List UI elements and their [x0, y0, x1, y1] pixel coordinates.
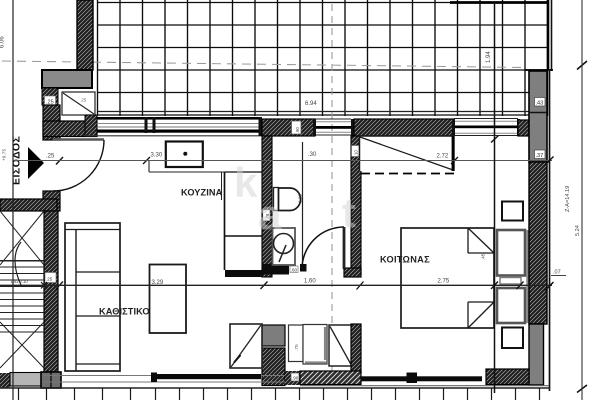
svg-text:.25: .25 — [46, 277, 53, 282]
svg-text:1.60: 1.60 — [304, 278, 316, 284]
svg-text:.75: .75 — [294, 344, 300, 351]
svg-text:.37: .37 — [536, 153, 544, 159]
svg-text:a: a — [258, 191, 282, 238]
svg-text:Ζ-Α=14.19: Ζ-Α=14.19 — [565, 186, 571, 212]
svg-text:.25: .25 — [46, 154, 55, 160]
svg-text:+9.75: +9.75 — [2, 149, 8, 161]
svg-text:.60: .60 — [291, 268, 298, 273]
svg-text:1.94: 1.94 — [486, 51, 492, 63]
svg-text:5.24: 5.24 — [575, 225, 581, 236]
svg-text:2.10: 2.10 — [20, 279, 29, 284]
svg-text:.07: .07 — [553, 270, 561, 276]
svg-text:k: k — [234, 159, 258, 206]
svg-text:3.30: 3.30 — [151, 153, 163, 159]
svg-text:.90: .90 — [295, 127, 300, 133]
svg-text:6.94: 6.94 — [305, 101, 317, 107]
svg-text:ΚΟΥΖΙΝΑ: ΚΟΥΖΙΝΑ — [181, 188, 223, 198]
svg-text:2.75: 2.75 — [438, 279, 450, 285]
svg-text:.90: .90 — [292, 376, 299, 381]
svg-text:6.06: 6.06 — [0, 36, 6, 48]
svg-text:.45: .45 — [481, 253, 486, 260]
svg-text:ΚΑΘΙΣΤΙΚΟ: ΚΑΘΙΣΤΙΚΟ — [99, 307, 150, 317]
svg-text:.30: .30 — [308, 152, 317, 158]
svg-text:2.72: 2.72 — [437, 154, 449, 160]
svg-text:ΚΟΙΤΩΝΑΣ: ΚΟΙΤΩΝΑΣ — [380, 255, 430, 265]
svg-text:.43: .43 — [536, 100, 544, 106]
svg-text:1.10: 1.10 — [298, 194, 303, 203]
svg-text:.25: .25 — [80, 98, 87, 103]
svg-text:.10: .10 — [354, 150, 359, 156]
svg-text:t: t — [342, 189, 356, 236]
svg-text:1.92: 1.92 — [11, 279, 20, 284]
